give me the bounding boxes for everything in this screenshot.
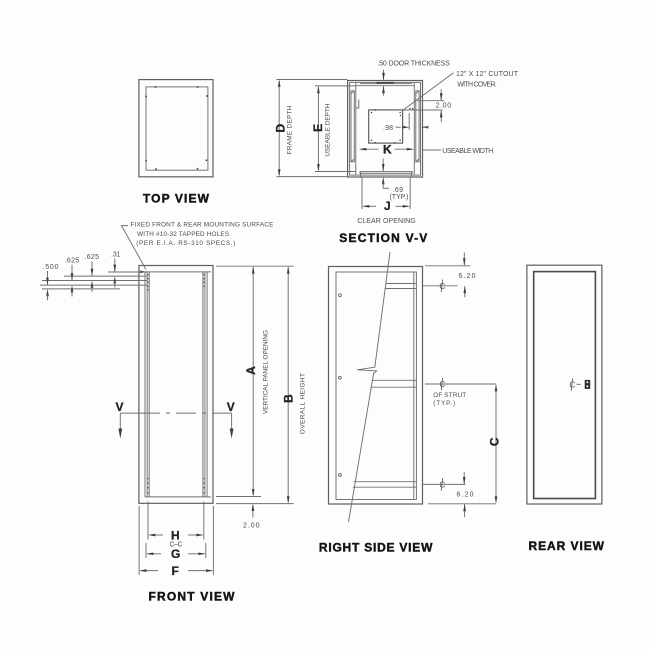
svg-text:E: E [311, 124, 325, 132]
svg-text:G: G [171, 547, 180, 561]
svg-text:OVERALL HEIGHT: OVERALL HEIGHT [300, 373, 307, 434]
svg-text:V: V [116, 400, 124, 414]
svg-text:FIXED FRONT & REAR MOUNTING SU: FIXED FRONT & REAR MOUNTING SURFACE [130, 222, 273, 229]
svg-text:A: A [244, 366, 258, 375]
svg-text:RIGHT SIDE VIEW: RIGHT SIDE VIEW [319, 541, 434, 555]
svg-text:(PER E.I.A. RS-310 SPECS.): (PER E.I.A. RS-310 SPECS.) [136, 240, 235, 247]
svg-text:VERTICAL PANEL OPENING: VERTICAL PANEL OPENING [262, 330, 269, 414]
svg-text:V: V [227, 400, 235, 414]
svg-text:.500: .500 [43, 264, 59, 271]
svg-text:C: C [487, 437, 501, 446]
svg-text:H: H [171, 528, 180, 542]
svg-text:WITH #10-32 TAPPED HOLES: WITH #10-32 TAPPED HOLES [137, 231, 229, 238]
svg-text:WITH COVER.: WITH COVER. [457, 82, 497, 89]
svg-text:.69: .69 [393, 187, 404, 194]
svg-text:(TYP.): (TYP.) [433, 400, 455, 407]
svg-text:.625: .625 [85, 254, 100, 261]
svg-text:OF STRUT: OF STRUT [433, 392, 466, 399]
svg-text:USEABLE DEPTH: USEABLE DEPTH [325, 103, 332, 156]
svg-text:2.00: 2.00 [243, 522, 260, 529]
svg-text:.31: .31 [111, 251, 121, 258]
svg-text:F: F [172, 564, 179, 578]
svg-text:.98: .98 [383, 125, 393, 132]
svg-text:D: D [273, 124, 287, 133]
svg-text:USEABLE WIDTH: USEABLE WIDTH [442, 148, 493, 155]
svg-text:.50 DOOR THICKNESS: .50 DOOR THICKNESS [377, 60, 450, 67]
svg-text:2.00: 2.00 [436, 103, 452, 110]
svg-text:6.20: 6.20 [457, 491, 474, 498]
svg-text:FRONT VIEW: FRONT VIEW [149, 590, 236, 604]
svg-text:K: K [383, 143, 392, 157]
svg-text:SECTION V-V: SECTION V-V [339, 231, 428, 245]
svg-text:B: B [282, 394, 296, 403]
svg-text:REAR VIEW: REAR VIEW [529, 539, 606, 553]
svg-text:FRAME DEPTH: FRAME DEPTH [286, 105, 293, 154]
svg-text:.625: .625 [65, 258, 80, 265]
svg-text:TOP VIEW: TOP VIEW [143, 192, 210, 206]
svg-text:12" X 12" CUTOUT: 12" X 12" CUTOUT [456, 71, 519, 78]
svg-text:(TYP.): (TYP.) [390, 194, 409, 201]
svg-text:J: J [384, 199, 391, 213]
svg-text:CLEAR OPENING: CLEAR OPENING [357, 218, 416, 225]
svg-text:6.20: 6.20 [459, 273, 476, 280]
